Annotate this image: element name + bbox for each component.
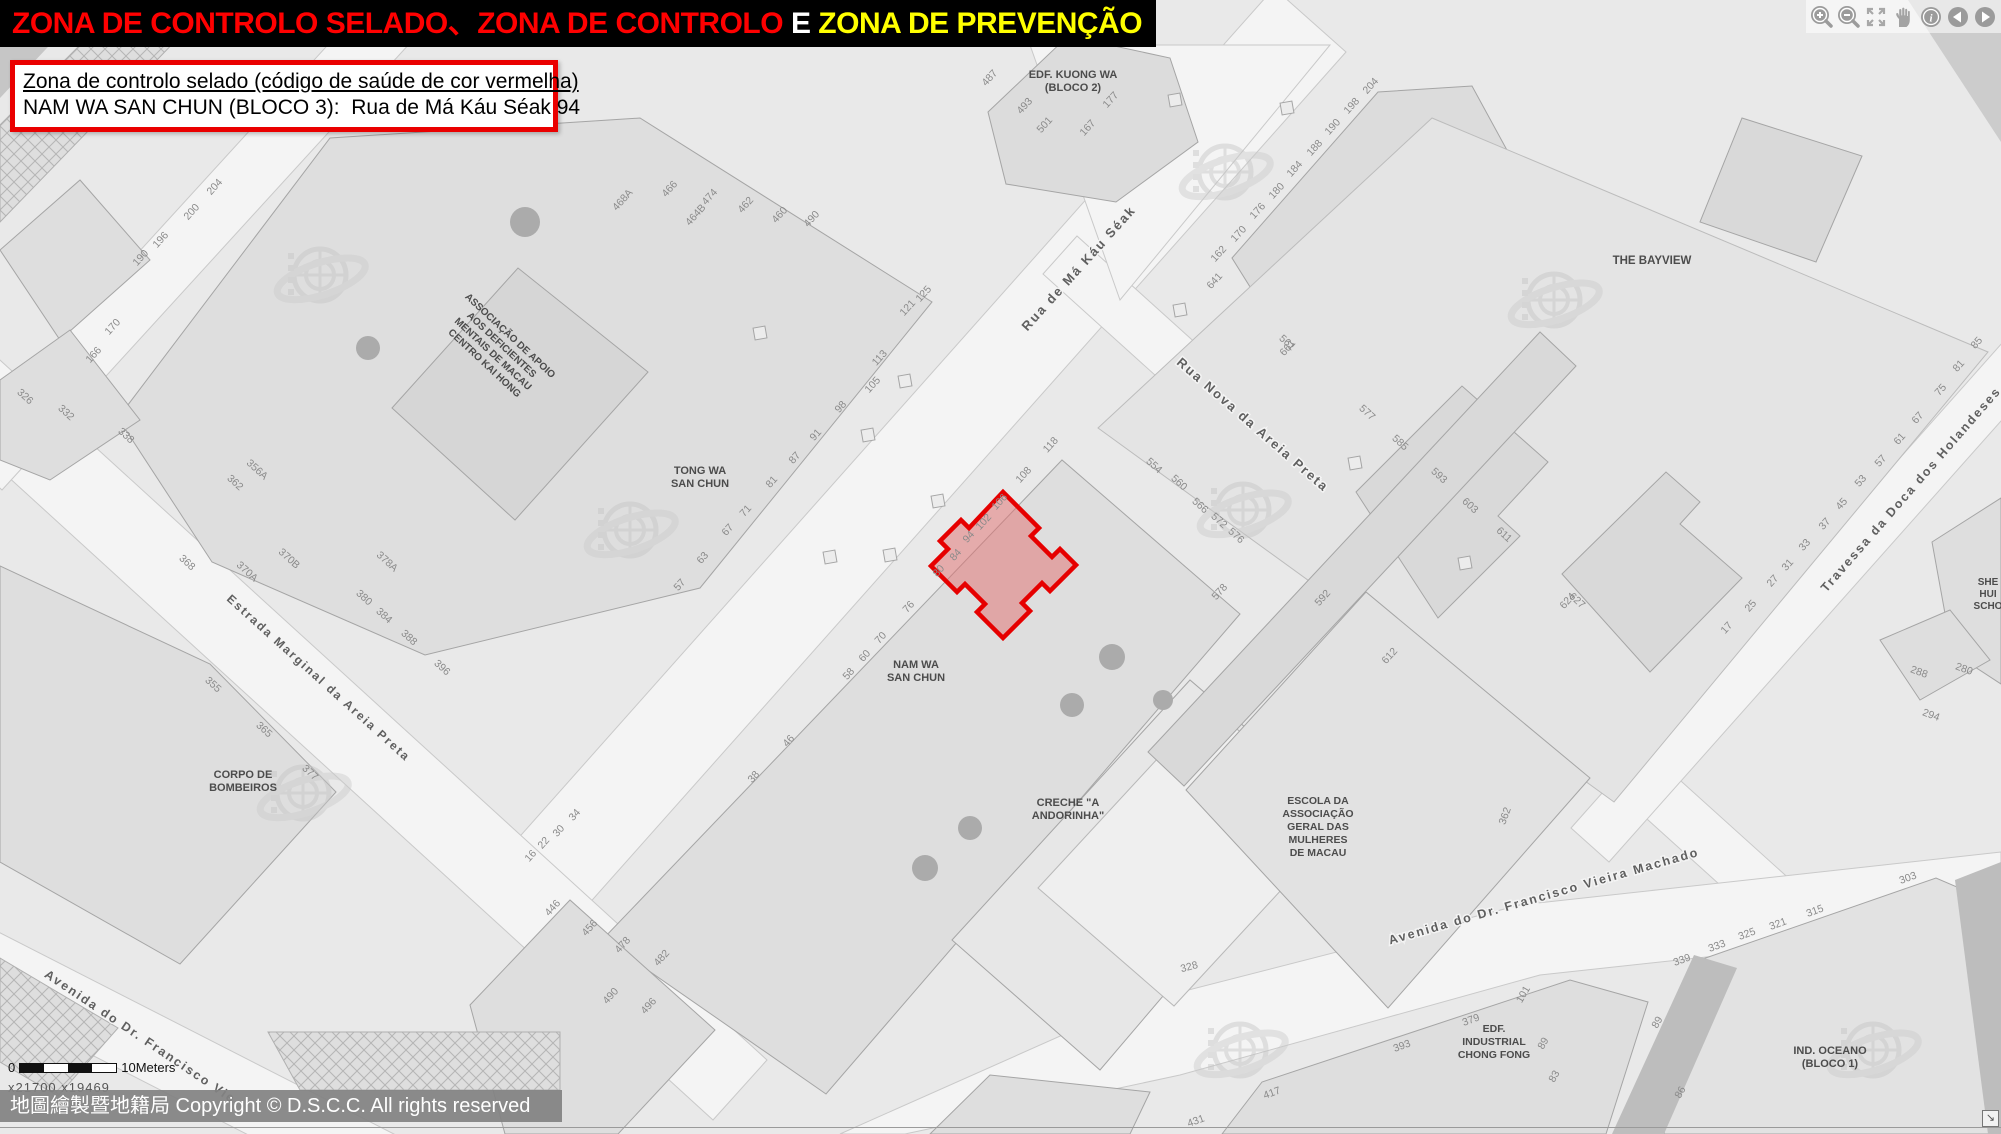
next-view-button[interactable] (1972, 4, 1998, 30)
map-marker-square (1173, 303, 1187, 317)
title-prevention-zone: ZONA DE PREVENÇÃO (810, 7, 1142, 40)
copyright-bar: 地圖繪製暨地籍局 Copyright © D.S.C.C. All rights… (0, 1090, 562, 1122)
pan-button[interactable] (1890, 4, 1916, 30)
map-border-line (0, 1127, 2001, 1128)
map-marker-square (1348, 456, 1362, 470)
tree-circle (1060, 693, 1084, 717)
title-conjunction: E (791, 7, 811, 40)
previous-icon (1945, 4, 1971, 30)
zoom-in-button[interactable] (1809, 4, 1835, 30)
map-toolbar: i (1806, 0, 2001, 33)
map-marker-square (1168, 93, 1182, 107)
tree-circle (510, 207, 540, 237)
tree-circle (356, 336, 380, 360)
map-marker-square (931, 494, 945, 508)
map-viewer-page: 5763677181879198105113121125384658607076… (0, 0, 2001, 1134)
pan-hand-icon (1890, 4, 1916, 30)
sealed-zone-info-box: Zona de controlo selado (código de saúde… (10, 60, 558, 132)
map-marker-square (861, 428, 875, 442)
building-label: CORPO DEBOMBEIROS (209, 769, 277, 794)
tree-circle (912, 855, 938, 881)
zoom-in-icon (1809, 4, 1835, 30)
fullscreen-icon (1863, 4, 1889, 30)
map-marker-square (1280, 101, 1294, 115)
previous-view-button[interactable] (1945, 4, 1971, 30)
map-marker-square (898, 374, 912, 388)
building-label: THE BAYVIEW (1613, 255, 1692, 267)
tree-circle (958, 816, 982, 840)
title-banner: ZONA DE CONTROLO SELADO、ZONA DE CONTROLO… (0, 0, 1156, 47)
scale-segment (20, 1064, 44, 1072)
collapse-corner-button[interactable]: ↘ (1982, 1110, 1999, 1127)
map-marker-square (753, 326, 767, 340)
map-canvas[interactable]: 5763677181879198105113121125384658607076… (0, 0, 2001, 1134)
scale-segment (92, 1064, 116, 1072)
info-button[interactable]: i (1918, 4, 1944, 30)
title-sealed-control: ZONA DE CONTROLO SELADO、ZONA DE CONTROLO (12, 7, 791, 40)
info-box-heading: Zona de controlo selado (código de saúde… (23, 70, 543, 94)
map-marker-square (823, 550, 837, 564)
info-icon: i (1918, 4, 1944, 30)
scale-label: 10Meters (121, 1060, 175, 1075)
map-marker-square (1458, 556, 1472, 570)
fullscreen-button[interactable] (1863, 4, 1889, 30)
building-label: NAM WASAN CHUN (887, 659, 945, 684)
zoom-out-button[interactable] (1836, 4, 1862, 30)
tree-circle (1099, 644, 1125, 670)
building-label: IND. OCEANO(BLOCO 1) (1793, 1045, 1867, 1070)
scale-segment (44, 1064, 68, 1072)
info-box-address: NAM WA SAN CHUN (BLOCO 3): Rua de Má Káu… (23, 96, 543, 120)
building-label: TONG WASAN CHUN (671, 465, 729, 490)
scale-zero: 0 (8, 1060, 15, 1075)
tree-circle (1153, 690, 1173, 710)
next-icon (1972, 4, 1998, 30)
building-label: ESCOLA DAASSOCIAÇÃOGERAL DASMULHERESDE M… (1282, 795, 1353, 859)
scale-bar: 0 10Meters (8, 1060, 175, 1075)
map-marker-square (883, 548, 897, 562)
zoom-out-icon (1836, 4, 1862, 30)
building-label: CRECHE "AANDORINHA" (1032, 797, 1104, 822)
scale-bar-graphic (19, 1063, 117, 1073)
scale-segment (68, 1064, 92, 1072)
